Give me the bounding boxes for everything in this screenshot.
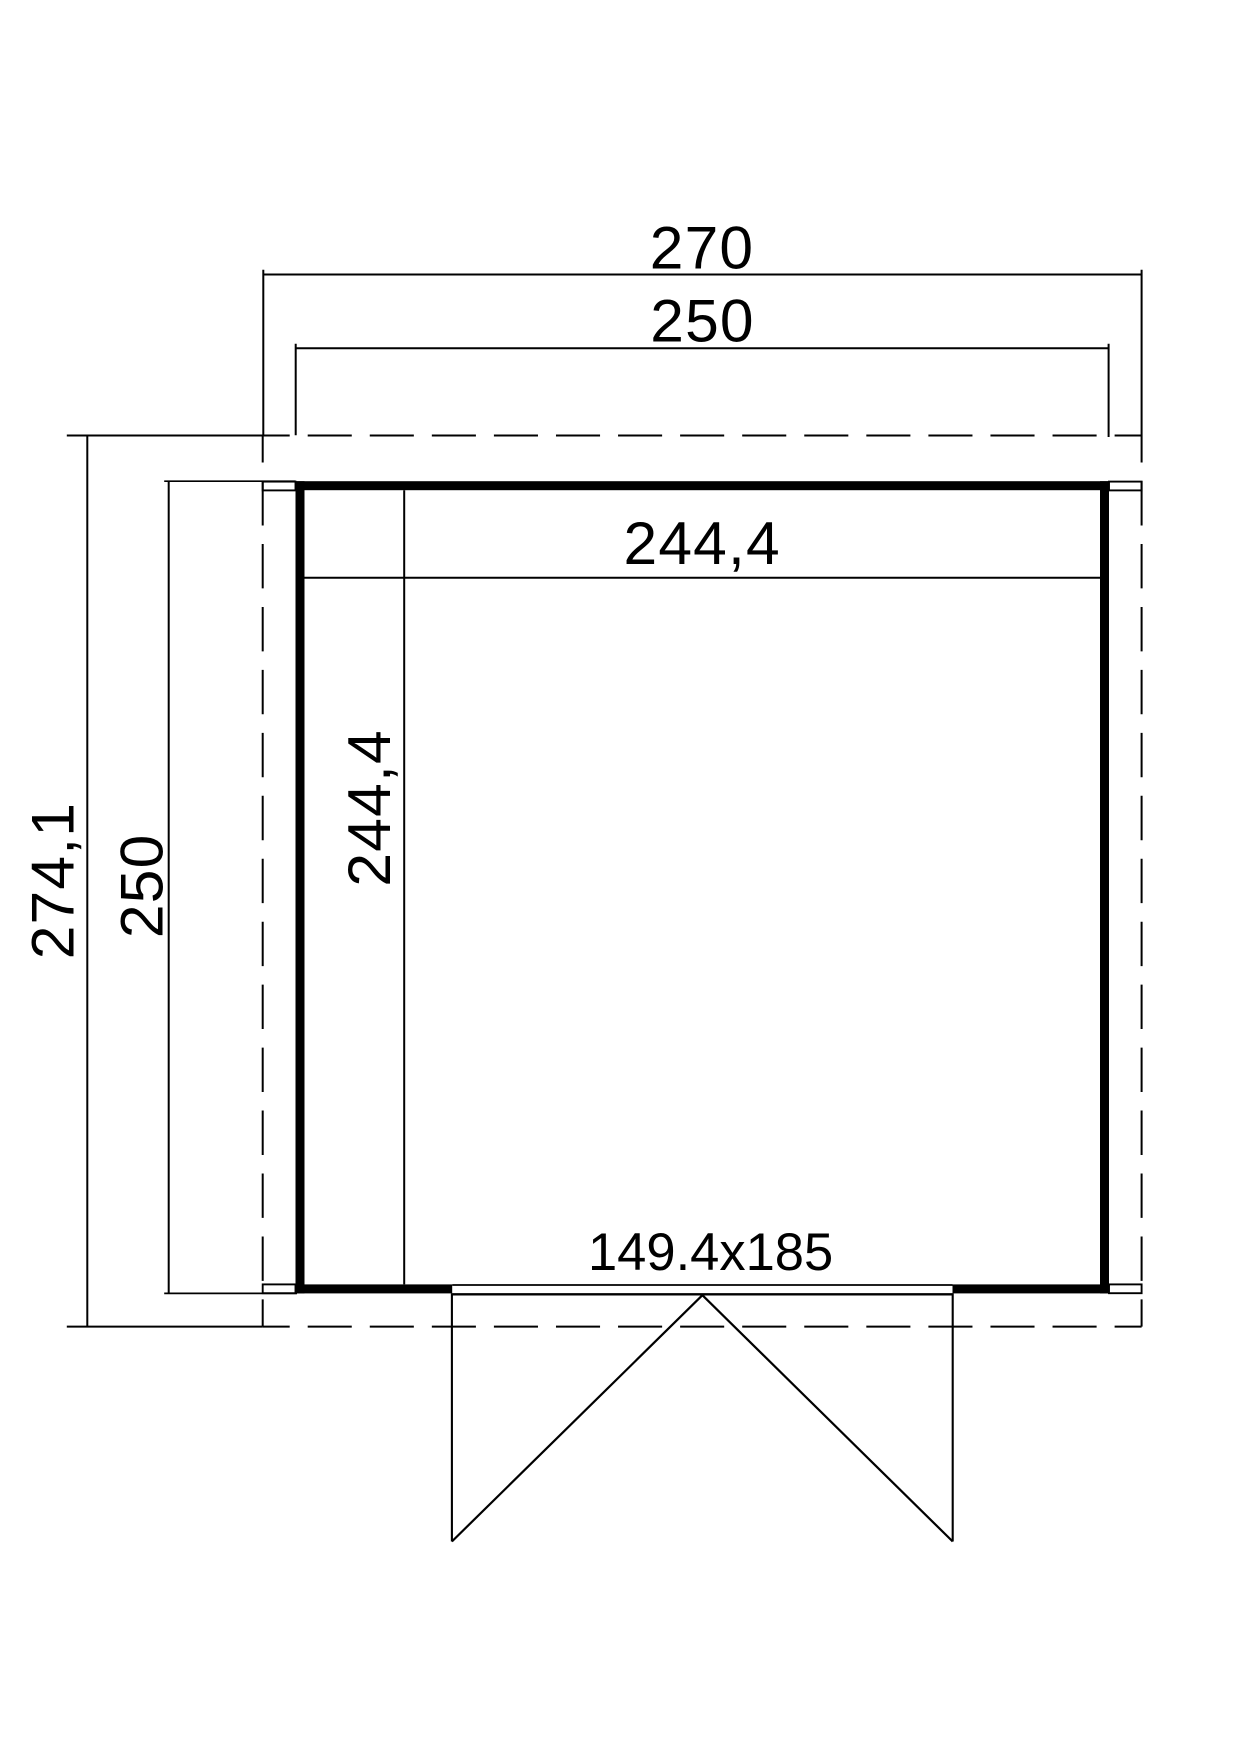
svg-text:250: 250 <box>107 834 175 939</box>
svg-text:244,4: 244,4 <box>335 729 403 886</box>
svg-text:244,4: 244,4 <box>623 509 780 577</box>
svg-text:274,1: 274,1 <box>19 802 87 959</box>
svg-text:250: 250 <box>650 286 755 354</box>
svg-text:149.4x185: 149.4x185 <box>588 1223 833 1282</box>
svg-text:270: 270 <box>650 214 755 282</box>
